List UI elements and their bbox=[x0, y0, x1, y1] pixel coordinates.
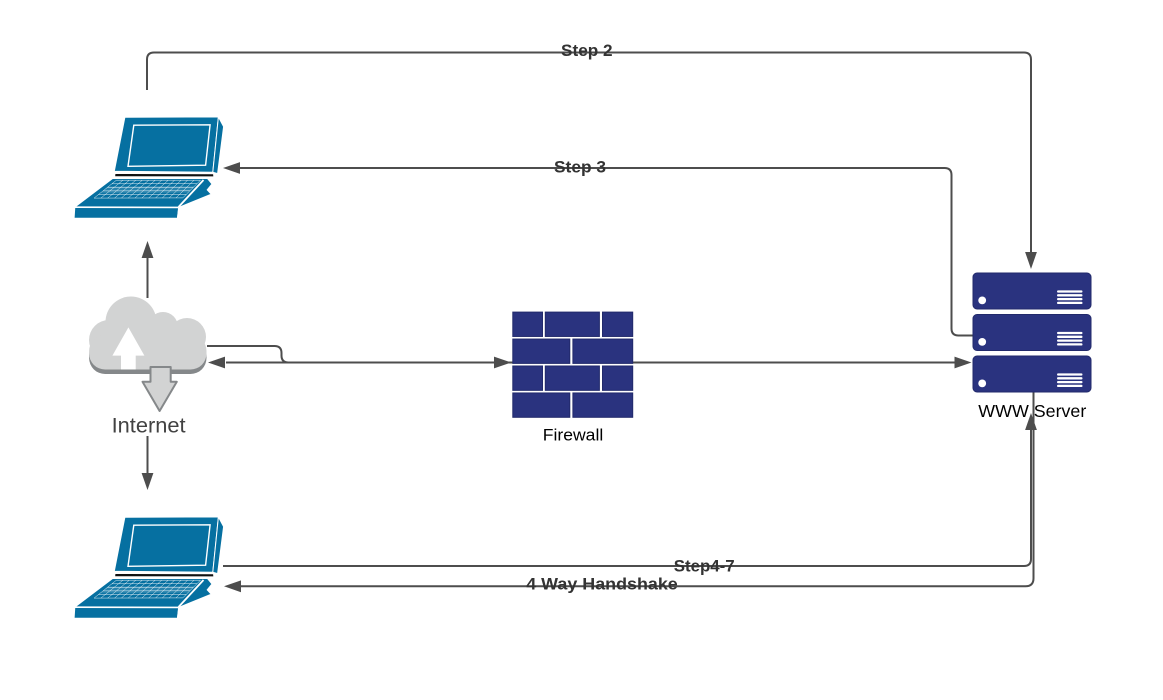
svg-text:Internet: Internet bbox=[112, 414, 186, 438]
svg-text:Step4-7: Step4-7 bbox=[674, 557, 735, 576]
svg-text:4 Way Handshake: 4 Way Handshake bbox=[526, 575, 678, 594]
svg-text:Firewall: Firewall bbox=[543, 426, 604, 445]
svg-text:Step 2: Step 2 bbox=[561, 41, 613, 60]
svg-text:Step 3: Step 3 bbox=[554, 158, 606, 177]
svg-text:WWW Server: WWW Server bbox=[978, 401, 1086, 421]
